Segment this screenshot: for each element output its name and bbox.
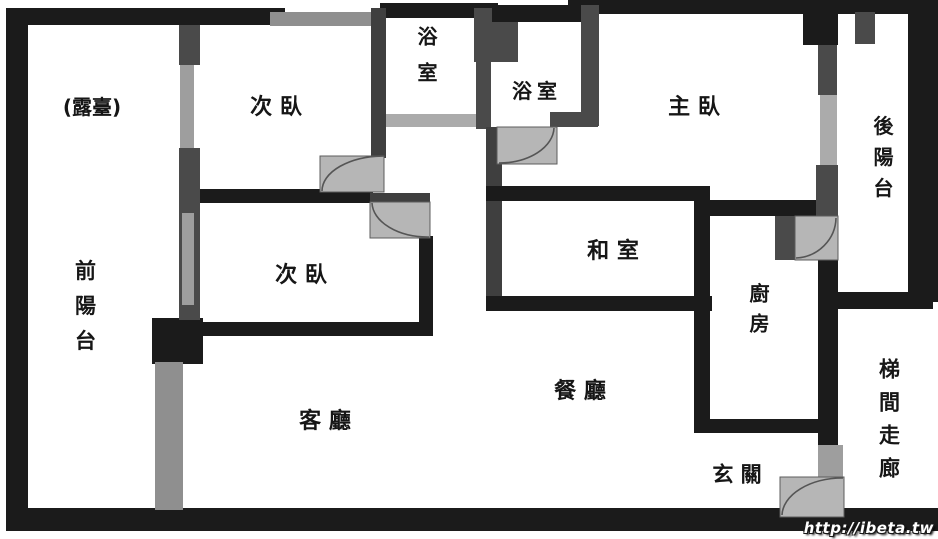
door-entry xyxy=(780,477,844,517)
room-label-dining-room: 餐 廳 xyxy=(554,381,606,403)
wall-bedroom2-bottom xyxy=(192,322,433,336)
wall-master-balcony-block xyxy=(803,8,838,45)
door-bathroom2 xyxy=(497,127,557,164)
wall-bath1-left xyxy=(371,8,386,158)
floor-plan: (露臺) 次 臥 浴室 浴室 主 臥 後陽台 前陽台 次 臥 和 室 廚房 餐 … xyxy=(0,0,938,539)
window-master-balcony xyxy=(820,95,837,165)
room-label-kitchen: 廚房 xyxy=(748,283,768,343)
window-front-balcony xyxy=(155,362,183,510)
door-bedroom2 xyxy=(370,202,430,238)
wall-bath2-top xyxy=(492,5,592,22)
wall-kitchen-left xyxy=(694,186,710,433)
wall-left-inner-top xyxy=(179,25,200,65)
room-label-living-room: 客 廳 xyxy=(299,411,351,433)
room-label-master-bedroom: 主 臥 xyxy=(668,97,720,119)
wall-bath-mid-lower xyxy=(476,55,491,129)
window-bath1-bottom xyxy=(386,114,476,127)
room-label-back-balcony: 後陽台 xyxy=(872,116,892,209)
room-label-tatami-room: 和 室 xyxy=(587,241,639,263)
wall-kitchen-bottom xyxy=(694,419,838,433)
pillar-balcony-top xyxy=(855,12,875,44)
window-top xyxy=(270,12,382,26)
door-kitchen xyxy=(775,216,838,260)
window-left-inner-1 xyxy=(180,65,194,148)
wall-outer-left xyxy=(6,8,28,531)
room-label-front-balcony: 前陽台 xyxy=(74,260,95,365)
room-label-stair-corridor: 梯間走廊 xyxy=(878,358,899,490)
door-bedroom1 xyxy=(320,156,384,192)
jamb-entry-door xyxy=(818,445,843,479)
wall-outer-top-right xyxy=(568,0,938,14)
wall-bedroom2-right xyxy=(419,236,433,336)
wall-master-left xyxy=(581,5,598,122)
room-label-bathroom-1: 浴室 xyxy=(416,26,436,98)
pillar-junction xyxy=(152,318,203,364)
wall-outer-top-left xyxy=(6,8,285,25)
floor-plan-walls xyxy=(0,0,938,539)
wall-master-balcony-upper xyxy=(818,45,837,95)
room-label-entry: 玄 關 xyxy=(712,465,761,486)
watermark-text: http://ibeta.tw xyxy=(804,519,934,537)
room-label-bedroom-middle: 次 臥 xyxy=(275,265,327,287)
room-label-terrace: (露臺) xyxy=(63,97,121,117)
wall-balcony-step xyxy=(832,292,933,309)
wall-tatami-bottom xyxy=(486,296,712,311)
room-label-bathroom-2: 浴室 xyxy=(512,81,562,101)
wall-tatami-top xyxy=(486,186,710,201)
window-bedroom2-left xyxy=(182,213,194,305)
wall-kitchen-top xyxy=(694,200,822,216)
wall-outer-right xyxy=(908,0,938,302)
room-label-bedroom-top: 次 臥 xyxy=(250,97,302,119)
